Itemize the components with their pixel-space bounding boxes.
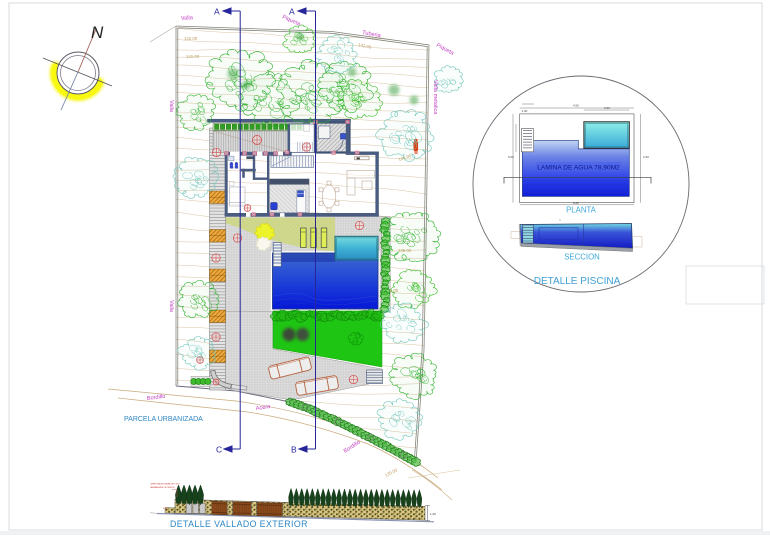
svg-text:DETALLE PISCINA: DETALLE PISCINA: [534, 276, 621, 287]
svg-text:5.00: 5.00: [508, 155, 514, 159]
svg-text:PARCELA URBANIZADA: PARCELA URBANIZADA: [124, 416, 203, 423]
svg-text:Valla metalica: Valla metalica: [432, 80, 438, 115]
svg-text:Bordillo: Bordillo: [343, 439, 362, 454]
svg-text:2.60: 2.60: [643, 155, 649, 159]
svg-text:4.50: 4.50: [573, 104, 579, 108]
svg-text:LAMINA DE AGUA 78,90M2: LAMINA DE AGUA 78,90M2: [537, 164, 620, 171]
svg-text:Valla: Valla: [168, 100, 174, 113]
svg-text:Acera: Acera: [255, 404, 271, 412]
svg-text:A: A: [214, 7, 220, 17]
svg-text:0,90h: 0,90h: [163, 508, 168, 510]
svg-text:DETALLE VALLADO EXTERIOR: DETALLE VALLADO EXTERIOR: [170, 519, 308, 529]
svg-text:N: N: [91, 23, 104, 42]
svg-text:Bordillo: Bordillo: [147, 394, 166, 402]
svg-text:B: B: [291, 445, 297, 455]
svg-text:C: C: [216, 445, 222, 455]
svg-text:LAMPARA MURO EXTERIOR: LAMPARA MURO EXTERIOR: [150, 486, 175, 489]
svg-text:142.00: 142.00: [184, 36, 198, 41]
svg-text:CIPRES MACROCARPA SETO EXT.: CIPRES MACROCARPA SETO EXT.: [150, 483, 181, 486]
svg-text:Piqueta: Piqueta: [435, 42, 455, 57]
svg-text:1.20: 1.20: [430, 512, 436, 516]
svg-text:A: A: [289, 7, 295, 17]
svg-text:141.00: 141.00: [358, 42, 372, 50]
svg-text:8.00: 8.00: [573, 201, 579, 205]
svg-text:Valla: Valla: [181, 15, 194, 22]
svg-text:1.00: 1.00: [522, 109, 528, 113]
svg-text:135.00: 135.00: [384, 467, 398, 478]
svg-text:3.20: 3.20: [604, 106, 610, 110]
svg-text:Valla: Valla: [168, 300, 174, 313]
svg-text:PLANTA: PLANTA: [566, 206, 597, 215]
svg-text:SECCION: SECCION: [564, 253, 600, 262]
svg-text:141.00: 141.00: [186, 54, 200, 59]
